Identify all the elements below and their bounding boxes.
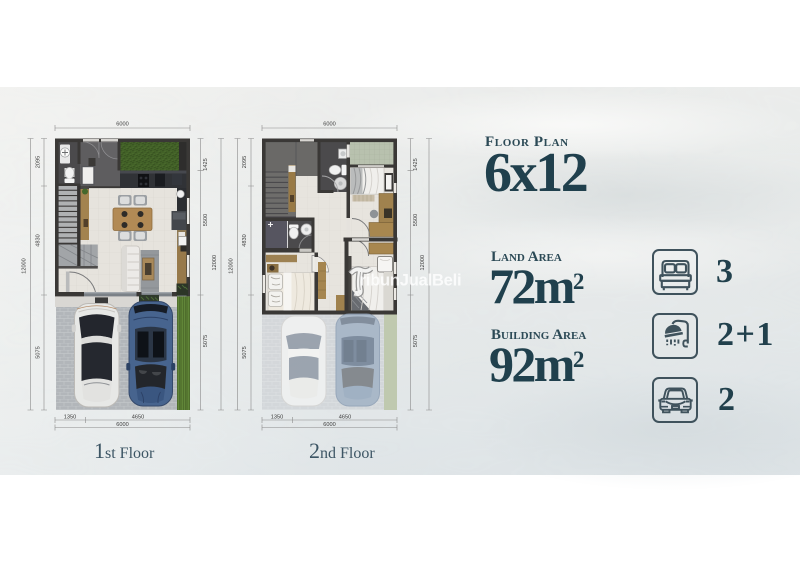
svg-text:2095: 2095 — [36, 156, 42, 168]
svg-text:5075: 5075 — [203, 335, 209, 347]
svg-text:12000: 12000 — [22, 258, 28, 274]
svg-text:5500: 5500 — [413, 214, 419, 226]
svg-text:12000: 12000 — [229, 258, 235, 274]
svg-text:5075: 5075 — [36, 346, 42, 358]
svg-text:2095: 2095 — [242, 156, 248, 168]
svg-text:1425: 1425 — [413, 158, 419, 170]
svg-text:1425: 1425 — [203, 158, 209, 170]
svg-text:ribunJualBeli: ribunJualBeli — [360, 271, 462, 289]
svg-text:4650: 4650 — [132, 414, 144, 420]
svg-text:5075: 5075 — [413, 335, 419, 347]
svg-text:6000: 6000 — [323, 422, 335, 428]
svg-text:5500: 5500 — [203, 214, 209, 226]
svg-text:4830: 4830 — [242, 234, 248, 246]
svg-text:5075: 5075 — [242, 346, 248, 358]
svg-text:4830: 4830 — [36, 234, 42, 246]
svg-text:6000: 6000 — [323, 122, 335, 128]
svg-text:6000: 6000 — [116, 422, 128, 428]
svg-text:1350: 1350 — [64, 414, 76, 420]
svg-text:6000: 6000 — [116, 122, 128, 128]
svg-text:4650: 4650 — [339, 414, 351, 420]
svg-text:1350: 1350 — [271, 414, 283, 420]
svg-text:12000: 12000 — [212, 255, 218, 271]
